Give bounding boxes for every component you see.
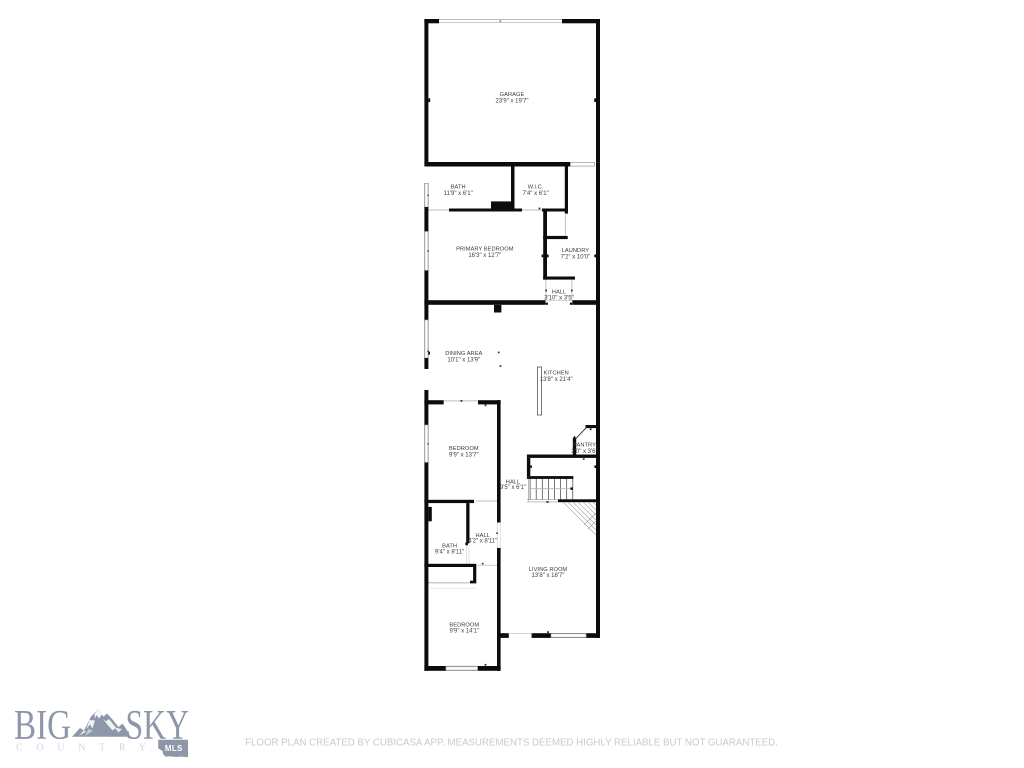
svg-text:10'1" x 13'9": 10'1" x 13'9" bbox=[447, 357, 480, 363]
svg-text:9'4" x 8'11": 9'4" x 8'11" bbox=[435, 550, 464, 556]
svg-text:W.I.C.: W.I.C. bbox=[528, 185, 544, 191]
svg-text:2'0" x 3'6": 2'0" x 3'6" bbox=[571, 449, 597, 455]
svg-text:4'2" x 8'11": 4'2" x 8'11" bbox=[468, 539, 497, 545]
svg-text:BATH: BATH bbox=[442, 544, 457, 550]
svg-text:11'9" x 6'1": 11'9" x 6'1" bbox=[444, 191, 473, 197]
svg-text:HALL: HALL bbox=[552, 289, 566, 295]
svg-text:BEDROOM: BEDROOM bbox=[449, 446, 479, 452]
svg-text:PANTRY: PANTRY bbox=[573, 442, 596, 448]
svg-text:DINING AREA: DINING AREA bbox=[445, 351, 482, 357]
svg-text:BATH: BATH bbox=[451, 185, 466, 191]
svg-text:PRIMARY BEDROOM: PRIMARY BEDROOM bbox=[456, 247, 514, 253]
svg-text:LAUNDRY: LAUNDRY bbox=[562, 248, 590, 254]
svg-text:23'9" x 19'7": 23'9" x 19'7" bbox=[496, 98, 529, 104]
svg-text:16'3" x 12'7": 16'3" x 12'7" bbox=[468, 253, 501, 259]
svg-text:7'2" x 10'0": 7'2" x 10'0" bbox=[561, 254, 591, 260]
svg-text:9'5" x 6'1": 9'5" x 6'1" bbox=[500, 485, 526, 491]
svg-text:LIVING ROOM: LIVING ROOM bbox=[529, 567, 568, 573]
svg-text:FLOOR PLAN CREATED BY CUBICASA: FLOOR PLAN CREATED BY CUBICASA APP. MEAS… bbox=[245, 737, 778, 748]
svg-text:MLS: MLS bbox=[165, 744, 183, 753]
svg-text:BEDROOM: BEDROOM bbox=[449, 623, 479, 629]
svg-text:7'4" x 6'1": 7'4" x 6'1" bbox=[522, 191, 548, 197]
svg-text:13'8" x 21'4": 13'8" x 21'4" bbox=[540, 377, 573, 383]
svg-text:KITCHEN: KITCHEN bbox=[544, 371, 569, 377]
svg-text:9'9" x 13'7": 9'9" x 13'7" bbox=[449, 452, 479, 458]
svg-text:GARAGE: GARAGE bbox=[500, 92, 525, 98]
svg-text:9'9" x 14'1": 9'9" x 14'1" bbox=[450, 629, 480, 635]
svg-text:3'10" x 3'5": 3'10" x 3'5" bbox=[544, 296, 574, 302]
svg-text:13'8" x 18'7": 13'8" x 18'7" bbox=[532, 573, 565, 579]
